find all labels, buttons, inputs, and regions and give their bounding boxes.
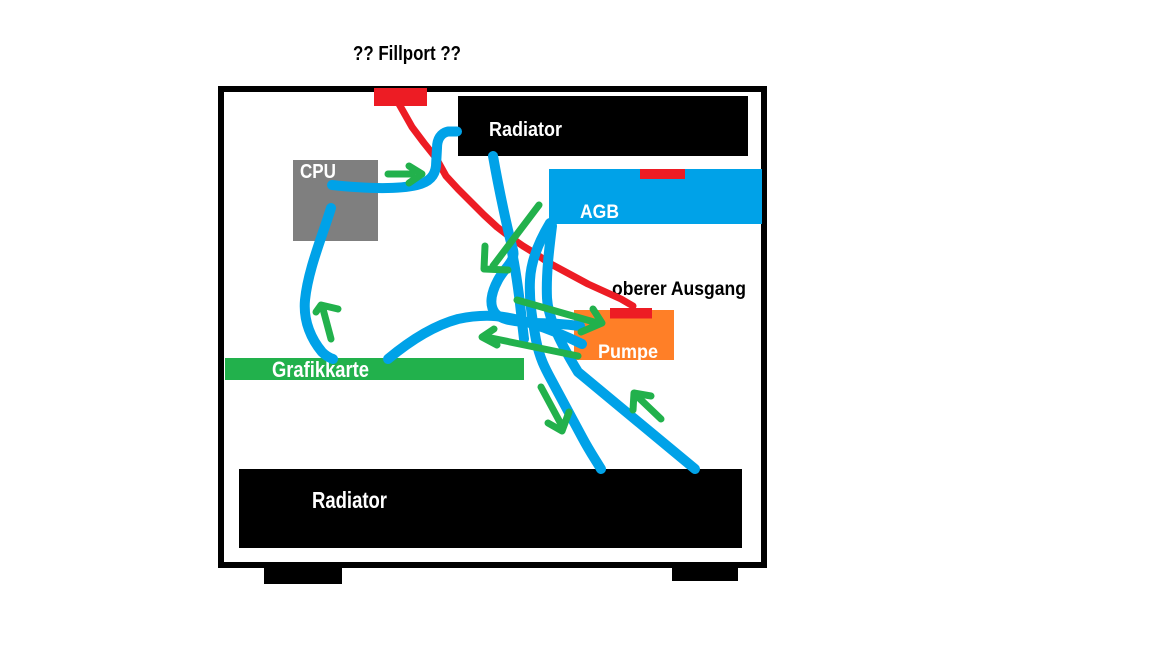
svg-text:?? Fillport ??: ?? Fillport ??: [353, 43, 461, 65]
svg-text:AGB: AGB: [580, 202, 619, 223]
svg-text:CPU: CPU: [300, 161, 336, 183]
svg-text:Radiator: Radiator: [489, 119, 562, 141]
svg-text:Grafikkarte: Grafikkarte: [272, 357, 369, 382]
svg-text:Pumpe: Pumpe: [598, 342, 658, 363]
svg-text:Radiator: Radiator: [312, 487, 387, 513]
svg-text:oberer Ausgang: oberer Ausgang: [612, 279, 746, 300]
